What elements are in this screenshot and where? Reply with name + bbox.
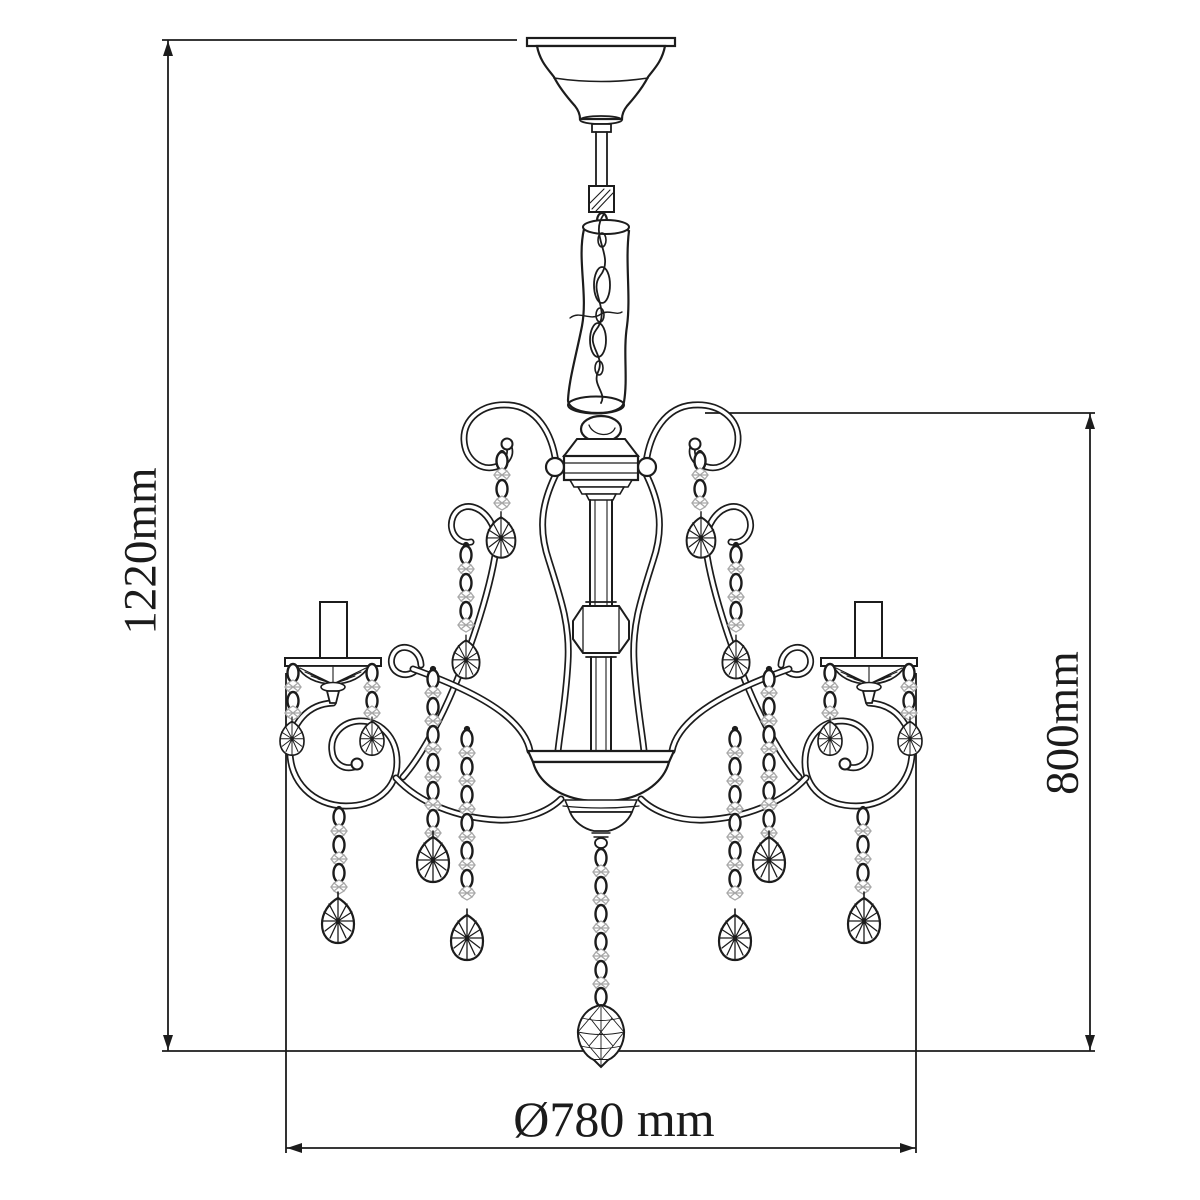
- overall-height-label: 1220mm: [118, 467, 165, 634]
- cord-sleeve: [568, 214, 629, 414]
- center-chain: [593, 849, 609, 1006]
- chandelier-dimension-drawing: [0, 0, 1200, 1200]
- top-finial-hub: [546, 416, 656, 500]
- ceiling-canopy: [527, 38, 675, 124]
- body-height-label: 800mm: [1040, 651, 1087, 795]
- hexagon-ornament: [573, 606, 629, 653]
- chandelier-drawing: [280, 38, 922, 1067]
- diameter-label: Ø780 mm: [513, 1094, 714, 1144]
- crystal-ball-finial: [578, 1005, 624, 1067]
- left-arm-group: [280, 405, 568, 960]
- center-column: [573, 500, 629, 751]
- bottom-bowl: [528, 751, 674, 848]
- hanging-rod: [589, 124, 614, 229]
- right-arm-group: [634, 405, 922, 960]
- drawing-canvas: 1220mm 800mm Ø780 mm: [0, 0, 1200, 1200]
